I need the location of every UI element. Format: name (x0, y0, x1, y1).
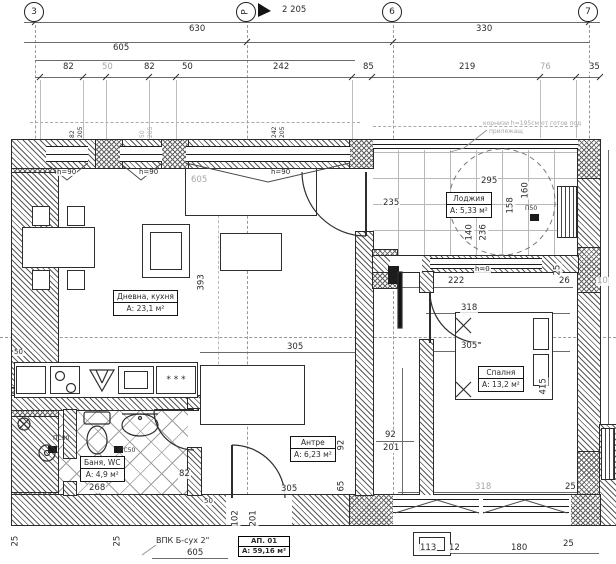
dim-line-630 (24, 42, 590, 43)
dim-25-bl: 25 (114, 535, 123, 548)
dim-50-left: 50 (13, 349, 24, 356)
dim-605: 605 (112, 44, 130, 53)
dim-201-v: 201 (250, 509, 259, 527)
dim-seg: 50 (181, 63, 194, 72)
ext-line (540, 80, 541, 138)
dim-82-bath: 82 (178, 470, 191, 479)
column-right-top (578, 140, 600, 178)
chair (32, 270, 50, 290)
p50-box (530, 214, 539, 221)
dim-102: 102 (232, 509, 241, 527)
kitchen-island (200, 365, 305, 425)
room-label-living: Дневна, кухня А: 23,1 м² (113, 290, 178, 316)
ext-line (576, 80, 577, 138)
dim-201: 201 (382, 444, 400, 453)
label-p50: П50 (524, 206, 538, 212)
vpk-note: ВПК Б-сух 2" (155, 537, 210, 545)
dim-seg: 50 (101, 63, 114, 72)
dim-113: 113 (419, 544, 437, 553)
dim-630: 630 (188, 25, 206, 34)
dim-seg: 219 (458, 63, 476, 72)
dim-line-total (24, 22, 600, 23)
dim-158: 158 (507, 196, 516, 214)
dim-236: 236 (480, 223, 489, 241)
room-name-bath: Баня, WC (81, 457, 124, 469)
room-area-bedroom: А: 13,2 м² (479, 379, 523, 390)
dim-line-right (608, 150, 609, 435)
freezer-stars: * * * (166, 375, 185, 385)
room-label-hall: Антре А: 6,23 м² (290, 436, 336, 462)
dim-line-segments (35, 77, 600, 78)
ext-line (40, 80, 41, 140)
dim-393: 393 (198, 273, 207, 291)
axis-label: 3 (31, 7, 37, 17)
apartment-number: АП. 01 (239, 537, 289, 547)
dim-25-bottom: 25 (562, 540, 575, 549)
dim-305-hall: 305 (280, 485, 298, 494)
dim-line-605 (35, 60, 355, 61)
dim-seg: 242 (272, 63, 290, 72)
dim-25-bl: 25 (12, 535, 21, 548)
room-label-bedroom: Спалня А: 13,2 м² (478, 366, 524, 392)
dim-160: 160 (522, 181, 531, 199)
radiator-neighbor (601, 428, 615, 480)
label-ps50: ПС50 (52, 436, 70, 442)
sill-height: h=90 (56, 169, 77, 176)
dim-line-corridor (402, 368, 403, 496)
apartment-area: А: 59,16 м² (239, 547, 289, 556)
dim-235-loggia: 235 (382, 199, 400, 208)
chair (67, 206, 85, 226)
dim-10: 10 (596, 277, 609, 286)
dim-180: 180 (510, 544, 528, 553)
room-label-loggia: Лоджия А: 5,33 м² (446, 192, 492, 218)
dim-65: 65 (338, 480, 347, 493)
pillow (533, 318, 549, 350)
dim-line-living (200, 352, 358, 353)
window-living-slider (186, 146, 350, 162)
dim-25-window: 25 (564, 483, 577, 492)
dim-295-loggia: 295 (480, 177, 498, 186)
window-bedroom-1 (393, 499, 479, 513)
room-area-hall: А: 6,23 м² (291, 449, 335, 460)
dim-50-hall: 50 (203, 498, 214, 505)
dining-table (22, 227, 95, 268)
ext-line (106, 80, 107, 140)
coffee-table (220, 233, 282, 271)
pier-top-2 (162, 140, 188, 168)
axis-bubble-7: 7 (578, 2, 598, 22)
dim-seg: 76 (539, 63, 552, 72)
window-living-1 (46, 146, 88, 162)
wall-bedroom-hall (420, 340, 433, 495)
dim-268: 268 (88, 484, 106, 493)
window-size: 205 (78, 126, 84, 139)
room-label-bath: Баня, WC А: 4,9 м² (80, 456, 125, 482)
axis-label: 7 (585, 7, 591, 17)
overhang-dashed-line (30, 122, 360, 123)
room-name-living: Дневна, кухня (114, 291, 177, 303)
label-ps50: ПС50 (118, 448, 136, 454)
pier-bottom-1 (350, 495, 393, 525)
dim-330: 330 (475, 25, 493, 34)
dim-222: 222 (447, 277, 465, 286)
axis-label: 6 (389, 7, 395, 17)
window-size: 205 (280, 126, 286, 139)
loggia-glazing (373, 139, 578, 149)
pier-top-3 (350, 140, 373, 168)
wall-bedroom-jamb (420, 272, 433, 292)
room-name-bedroom: Спалня (479, 367, 523, 379)
vpk-leader-line (142, 545, 156, 555)
room-name-hall: Антре (291, 437, 335, 449)
dim-seg: 82 (62, 63, 75, 72)
dim-318-window: 318 (474, 483, 492, 492)
window-size: 50 (140, 129, 146, 139)
cornice-note-line1: корнизи h=195см от готов под (482, 121, 582, 127)
dim-305-living: 305 (286, 343, 304, 352)
dim-605-gray: 605 (190, 176, 208, 185)
sill-height: h=90 (270, 169, 291, 176)
radiator-loggia (557, 186, 577, 238)
apartment-label: АП. 01 А: 59,16 м² (238, 536, 290, 557)
dim-12: 12 (448, 544, 461, 553)
window-size: 242 (272, 126, 278, 139)
sill-height-0: h=0 (474, 266, 491, 273)
room-name-loggia: Лоджия (447, 193, 491, 205)
pier-bottom-2 (571, 495, 600, 525)
floor-plan: * * * (0, 0, 616, 564)
window-size: 82 (70, 129, 76, 139)
room-area-loggia: А: 5,33 м² (447, 205, 491, 216)
wall-living-corridor (356, 232, 373, 495)
dim-line-hall92 (376, 441, 414, 442)
dim-415: 415 (540, 377, 549, 395)
dim-seg: 82 (143, 63, 156, 72)
armchair-seat (150, 232, 182, 270)
dim-318-bedroom: 318 (460, 304, 478, 313)
stove (50, 366, 80, 394)
dim-92-rot: 92 (338, 439, 347, 452)
axis-bubble-3: 3 (24, 2, 44, 22)
wall-kitchen-bath (12, 396, 198, 410)
grid-axis-r-line (247, 20, 248, 525)
pier-top-1 (96, 140, 122, 168)
dim-total: 2 205 (281, 6, 307, 15)
wall-bath-partition-2 (64, 482, 76, 495)
axis-bubble-section: Р (236, 2, 256, 22)
wall-left (12, 140, 58, 525)
cornice-note-line2: прилежащ (488, 129, 524, 135)
section-marker-flag (258, 3, 271, 17)
room-area-living: А: 23,1 м² (114, 303, 177, 314)
chair (67, 270, 85, 290)
dim-seg: 85 (362, 63, 375, 72)
window-size: 205 (148, 126, 154, 139)
axis-label: Р (241, 9, 251, 14)
sill-height: h=90 (138, 169, 159, 176)
dim-92: 92 (384, 431, 397, 440)
dim-305-bedroom: 305 (460, 342, 478, 351)
ext-line (176, 80, 177, 140)
window-living-2 (120, 146, 162, 162)
kitchen-cabinet (16, 366, 46, 394)
vpk-dim-605: 605 (186, 549, 204, 558)
sink-basin (124, 371, 148, 389)
shaft-duct (388, 266, 399, 284)
dim-line-loggia (373, 287, 573, 288)
dim-140: 140 (466, 223, 475, 241)
axis-bubble-6: 6 (382, 2, 402, 22)
dim-25-loggia: 25 (554, 264, 563, 277)
chair (32, 206, 50, 226)
ps50-box (48, 446, 57, 453)
dim-seg: 35 (588, 63, 601, 72)
entrance-door-arc (232, 445, 285, 498)
ext-line (352, 80, 353, 140)
dim-line-605-bottom (152, 558, 228, 559)
room-area-bath: А: 4,9 м² (81, 469, 124, 480)
dim-26: 26 (558, 277, 571, 286)
window-bedroom-2 (483, 499, 569, 513)
wall-bath-partition (64, 410, 76, 458)
fridge: * * * (156, 366, 196, 394)
